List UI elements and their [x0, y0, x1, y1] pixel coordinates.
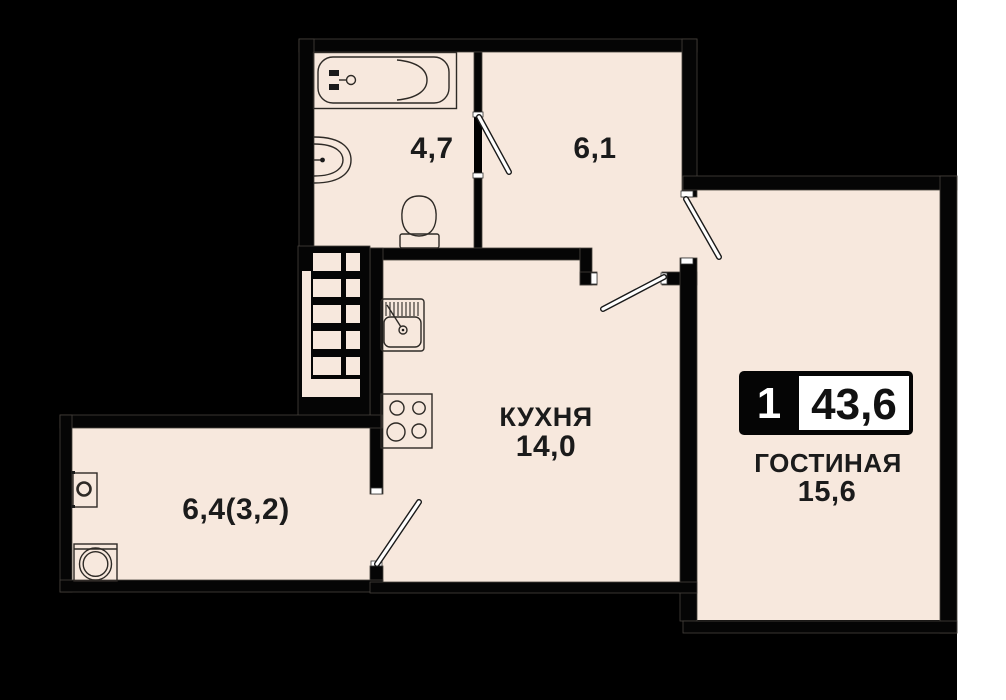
- jamb-bathroom-bottom: [473, 173, 483, 178]
- bathroom-area-label: 4,7: [410, 132, 453, 165]
- wall-bath-hall-upper: [474, 52, 482, 113]
- badge-total-area: 43,6: [811, 380, 897, 429]
- wall-kitchen-bottom: [370, 582, 697, 593]
- hallway-area-label: 6,1: [573, 132, 616, 165]
- wall-living-right: [940, 176, 957, 633]
- living-room-area-label: 15,6: [798, 476, 856, 508]
- wall-living-bottom: [683, 621, 957, 633]
- wall-balcony-top: [60, 415, 382, 428]
- kitchen-name-label: КУХНЯ: [499, 402, 592, 432]
- wall-balcony-stub: [370, 566, 383, 582]
- jamb-balcony-top: [371, 488, 382, 494]
- wall-top: [299, 39, 697, 52]
- wall-hall-kitchen: [370, 248, 580, 260]
- wall-balcony-bottom: [60, 580, 383, 592]
- jamb-kitchen-left: [591, 273, 597, 284]
- wall-bath-left: [299, 39, 314, 248]
- balcony-area-label: 6,4(3,2): [182, 493, 289, 526]
- wall-balcony-left: [60, 415, 72, 592]
- apartment-badge: 1 43,6: [739, 371, 913, 435]
- wall-hall-living-upper: [682, 39, 697, 197]
- jamb-living-top: [681, 191, 693, 197]
- floor-plan: 1 43,6 4,7 6,1 КУХНЯ 14,0 ГОСТИНАЯ 15,6 …: [0, 0, 1006, 700]
- kitchen-area-label: 14,0: [516, 430, 576, 463]
- living-room-name-label: ГОСТИНАЯ: [754, 448, 902, 478]
- wall-bath-hall-lower: [474, 178, 482, 248]
- wall-kitchen-left: [370, 248, 383, 494]
- wall-living-top: [683, 176, 957, 190]
- wall-kitchen-living: [680, 258, 697, 621]
- floor-plan-canvas: 1 43,6 4,7 6,1 КУХНЯ 14,0 ГОСТИНАЯ 15,6 …: [0, 0, 1006, 700]
- badge-rooms-count: 1: [757, 379, 781, 428]
- jamb-living-bottom: [681, 258, 693, 264]
